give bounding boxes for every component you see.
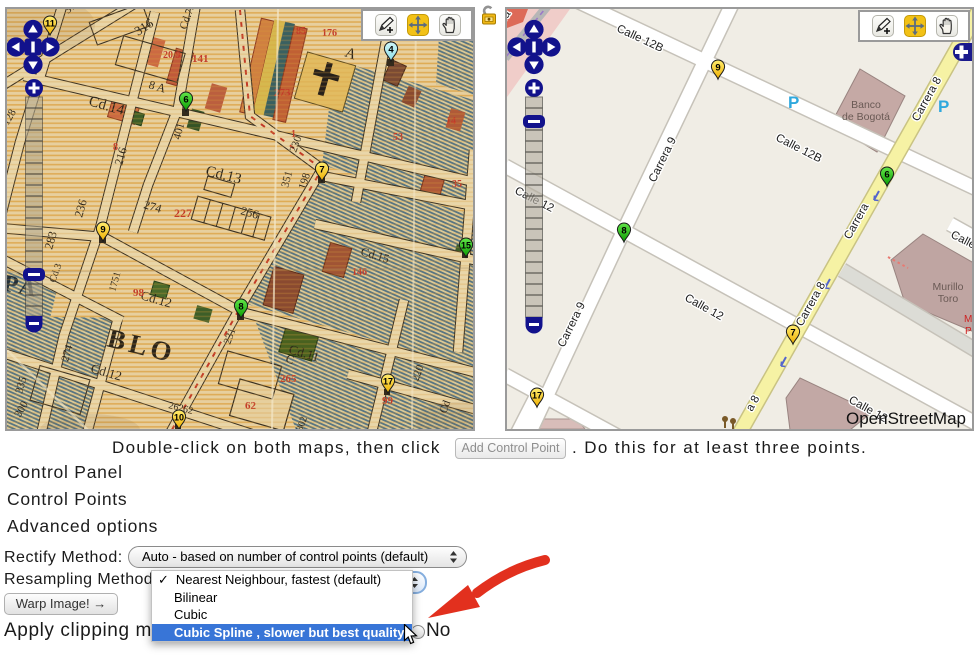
svg-text:7: 7 [790,327,795,338]
svg-text:Toro: Toro [938,293,959,305]
svg-text:Murillo: Murillo [933,281,964,293]
svg-text:4: 4 [388,44,394,55]
svg-text:Banco: Banco [851,99,881,111]
svg-text:P: P [938,97,949,116]
svg-text:8: 8 [621,225,626,236]
svg-text:de Bogotá: de Bogotá [842,111,890,123]
svg-text:OpenStreetMap: OpenStreetMap [846,409,966,428]
svg-text:Calle 12: Calle 12 [683,292,726,323]
svg-text:6: 6 [183,94,188,105]
svg-text:P: P [788,93,799,112]
svg-text:8: 8 [238,301,243,312]
svg-text:17: 17 [532,390,542,400]
svg-text:9: 9 [100,224,105,235]
svg-text:17: 17 [383,376,393,386]
svg-text:Calle 12B: Calle 12B [774,132,824,165]
svg-text:P: P [965,326,972,337]
svg-text:9: 9 [715,62,720,73]
svg-text:11: 11 [45,18,56,29]
svg-text:6: 6 [884,169,889,180]
svg-text:7: 7 [319,164,324,175]
svg-text:M: M [964,314,972,325]
svg-text:15: 15 [461,240,471,250]
svg-text:10: 10 [174,412,184,422]
